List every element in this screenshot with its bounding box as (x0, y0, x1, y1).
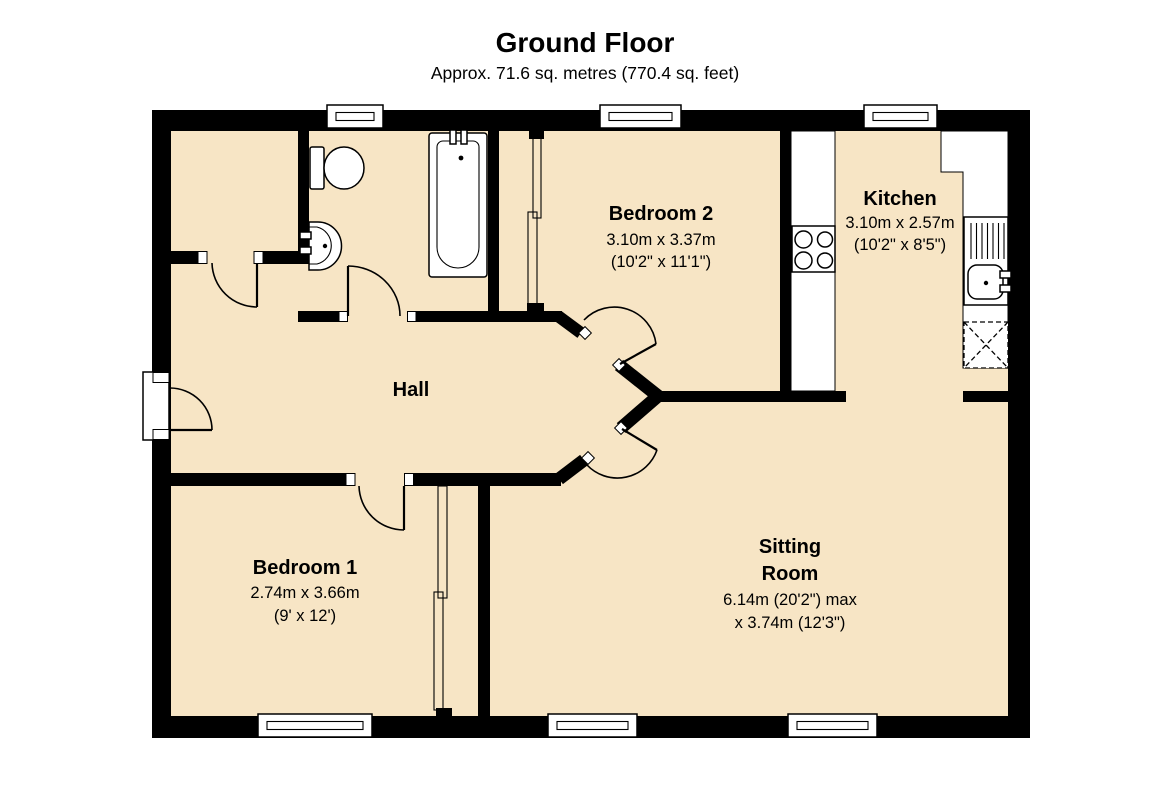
label-kitchen-metric: 3.10m x 2.57m (845, 214, 954, 232)
toilet (310, 147, 364, 189)
label-bedroom1-imperial: (9' x 12') (274, 607, 336, 625)
window-kitchen (864, 105, 937, 128)
floor-plan-page: Ground Floor Approx. 71.6 sq. metres (77… (0, 0, 1170, 785)
label-bedroom1-metric: 2.74m x 3.66m (250, 584, 359, 602)
label-sitting-2: Room (762, 563, 819, 585)
wall-cupboard-bottom-left (171, 251, 198, 264)
label-kitchen-imperial: (10'2" x 8'5") (854, 236, 946, 254)
floor-plan-drawing: Ground Floor Approx. 71.6 sq. metres (77… (0, 0, 1170, 785)
label-bedroom2-metric: 3.10m x 3.37m (606, 231, 715, 249)
bathtub (429, 130, 487, 277)
label-kitchen: Kitchen (863, 188, 936, 210)
page-title: Ground Floor (496, 27, 675, 58)
label-bedroom2: Bedroom 2 (609, 203, 713, 225)
wall-bedroom1-top-left (171, 473, 346, 486)
window-sitting-left (548, 714, 637, 737)
window-bedroom2 (600, 105, 681, 128)
label-sitting-metric: 6.14m (20'2") max (723, 591, 857, 609)
wall-bedroom1-sitting (478, 473, 490, 716)
label-bedroom1: Bedroom 1 (253, 557, 357, 579)
window-bathroom (327, 105, 383, 128)
wall-cupboard-divider (298, 131, 309, 263)
wall-kitchen-entry-right (963, 391, 1008, 402)
kitchen-sink-drainer (964, 217, 1011, 305)
page-subtitle: Approx. 71.6 sq. metres (770.4 sq. feet) (431, 63, 739, 83)
hob (792, 226, 835, 272)
wall-bedroom2-kitchen (780, 131, 791, 402)
label-bedroom2-imperial: (10'2" x 11'1") (611, 253, 711, 271)
wall-bathroom-bottom-right (407, 311, 562, 322)
wall-hall-east (652, 391, 846, 402)
window-bedroom1 (258, 714, 372, 737)
wall-bathroom-right (488, 131, 499, 322)
label-hall: Hall (393, 379, 430, 401)
label-sitting-imperial: x 3.74m (12'3") (735, 614, 846, 632)
label-sitting-1: Sitting (759, 536, 821, 558)
window-sitting-right (788, 714, 877, 737)
appliance-space (964, 322, 1008, 368)
